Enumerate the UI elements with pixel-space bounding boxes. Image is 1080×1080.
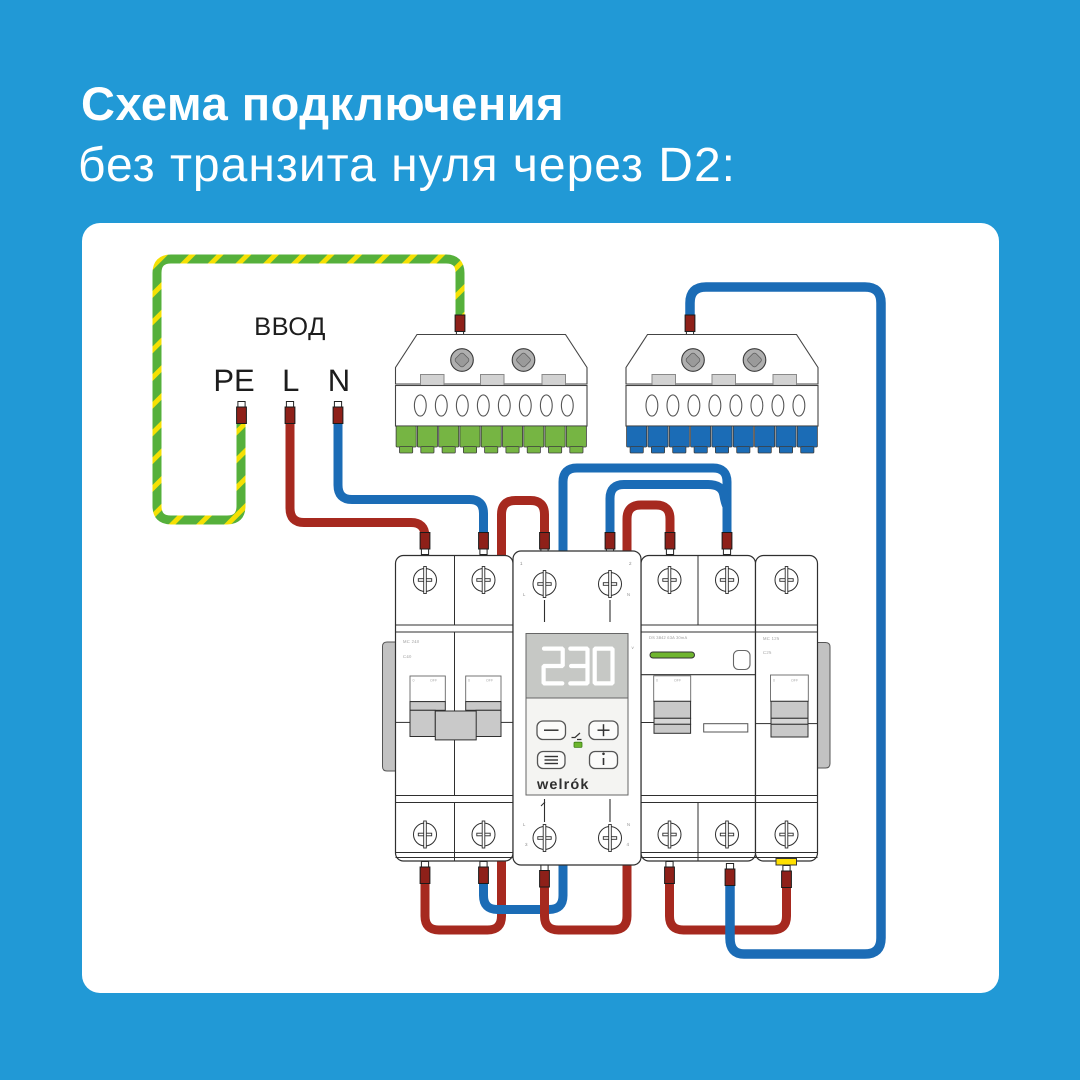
svg-text:PE: PE: [213, 363, 254, 398]
svg-text:OFF: OFF: [791, 679, 799, 683]
svg-text:ВВОД: ВВОД: [254, 313, 326, 341]
svg-text:OFF: OFF: [430, 679, 438, 683]
svg-text:MC 240: MC 240: [403, 639, 420, 644]
svg-text:N: N: [627, 822, 630, 827]
svg-text:0: 0: [468, 679, 470, 683]
svg-text:C40: C40: [403, 654, 412, 659]
svg-text:L: L: [282, 363, 299, 398]
svg-text:0: 0: [413, 679, 415, 683]
svg-text:OFF: OFF: [674, 679, 682, 683]
svg-text:N: N: [328, 363, 350, 398]
svg-text:0: 0: [656, 679, 658, 683]
svg-text:OFF: OFF: [486, 679, 494, 683]
svg-text:DS 3842 63A 30mA: DS 3842 63A 30mA: [649, 635, 687, 640]
svg-text:C25: C25: [763, 650, 772, 655]
svg-text:N: N: [627, 592, 630, 597]
svg-text:welrók: welrók: [536, 777, 590, 793]
svg-text:MC 125: MC 125: [763, 636, 780, 641]
svg-text:0: 0: [773, 679, 775, 683]
